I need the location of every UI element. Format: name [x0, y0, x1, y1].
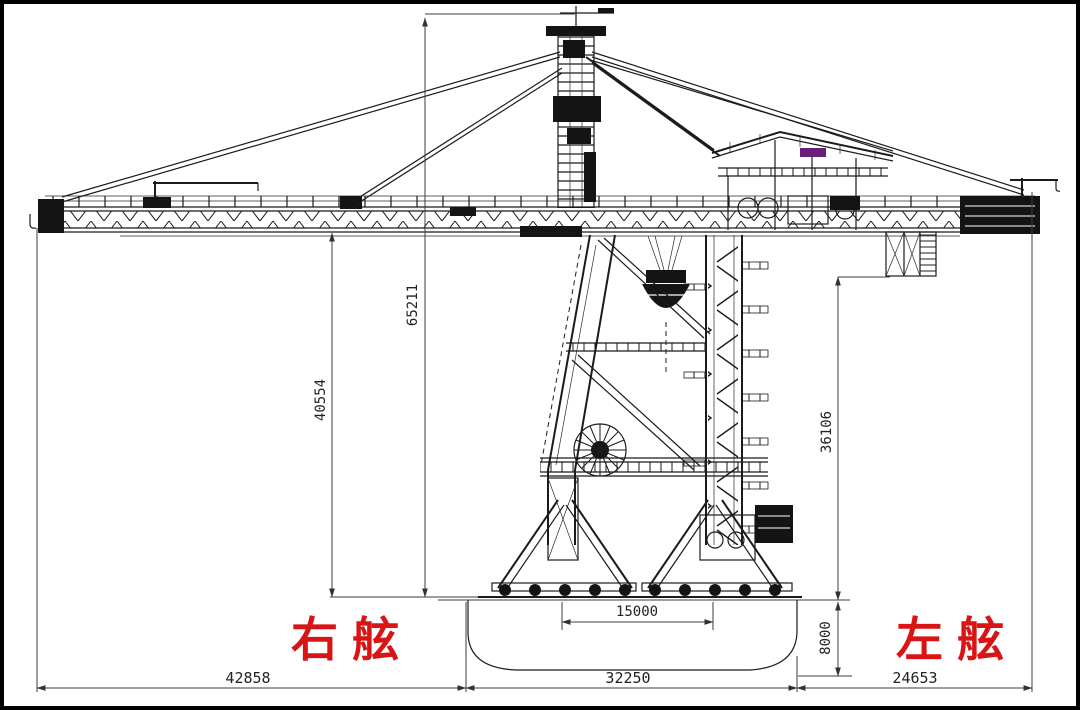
frame-border	[2, 2, 1078, 708]
dim-text-8000: 8000	[818, 621, 834, 655]
drawing-canvas: 65211 40554 36106 15000 8000 42858 32250…	[0, 0, 1080, 710]
stair-cage	[886, 232, 936, 276]
crane-drawing: 65211 40554 36106 15000 8000 42858 32250…	[0, 0, 1080, 710]
label-starboard: 右舷	[291, 613, 413, 668]
counterjib-end	[960, 178, 1060, 234]
dimension-total-height: 65211	[405, 14, 575, 597]
rear-leg-stairs	[684, 235, 768, 545]
dimension-leg-span: 15000	[562, 602, 713, 630]
dim-text-24653: 24653	[892, 669, 937, 687]
dimension-bottom-chain: 42858 32250 24653	[37, 192, 1032, 692]
dim-text-65211: 65211	[405, 284, 421, 326]
dim-text-32250: 32250	[605, 669, 650, 687]
tower-apex	[546, 6, 614, 208]
label-port: 左舷	[896, 613, 1018, 668]
dim-text-15000: 15000	[616, 604, 658, 620]
dimension-hull-depth: 8000	[798, 602, 852, 676]
bridge-girder	[30, 196, 1038, 237]
side-labels: 右舷 左舷	[291, 613, 1018, 668]
dim-text-42858: 42858	[225, 669, 270, 687]
dim-text-40554: 40554	[313, 379, 329, 421]
portal-bogies	[492, 500, 793, 596]
dimension-tower-height: 40554	[313, 233, 478, 597]
purple-marker	[800, 148, 826, 157]
front-leg	[541, 235, 615, 560]
dim-text-36106: 36106	[819, 411, 835, 453]
dimension-counterjib-height: 36106	[819, 277, 890, 600]
mid-braces	[566, 238, 710, 470]
